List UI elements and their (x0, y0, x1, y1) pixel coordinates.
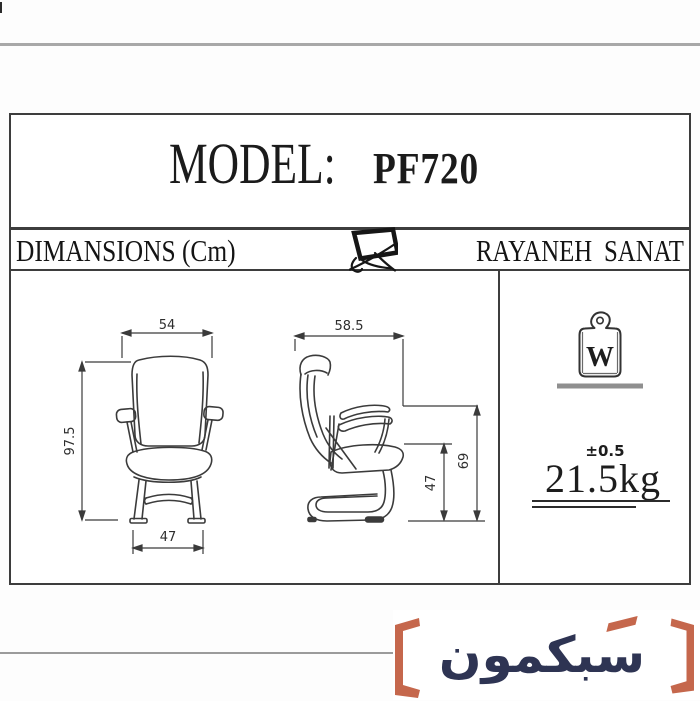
chair-icon (338, 226, 398, 274)
spec-sheet: MODEL: PF720 DIMANSIONS (Cm) RAYANEH SAN… (9, 113, 691, 585)
cell-divider (498, 271, 500, 583)
watermark-right-bracket-icon (664, 613, 694, 697)
model-number: PF720 (373, 147, 479, 191)
bottom-divider-rule (0, 652, 397, 654)
title-row: MODEL: PF720 (11, 115, 689, 230)
dimensions-header-row: DIMANSIONS (Cm) RAYANEH SANAT (11, 230, 689, 271)
brand-name: RAYANEH SANAT (476, 235, 684, 266)
top-divider-rule (0, 43, 700, 46)
page-edge-tick (0, 2, 2, 13)
weight-underline-2 (532, 506, 636, 508)
dimensions-label: DIMANSIONS (Cm) (16, 235, 236, 266)
weight-value: 21.5kg (523, 459, 683, 499)
weight-underline-1 (532, 500, 670, 502)
content-row (11, 271, 689, 583)
model-label: MODEL: (169, 135, 336, 193)
